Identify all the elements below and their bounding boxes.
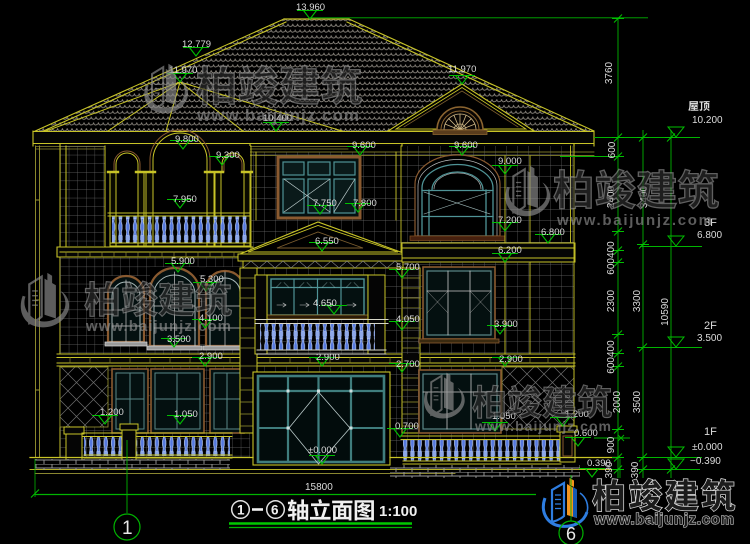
svg-text:www.baijunjz.com: www.baijunjz.com [85,318,231,335]
svg-text:2.900: 2.900 [499,354,523,365]
svg-text:600: 600 [607,141,618,158]
svg-text:www.baijunjz.com: www.baijunjz.com [593,511,734,528]
svg-text:9.800: 9.800 [175,134,199,145]
svg-text:9.600: 9.600 [352,140,376,151]
svg-text:0.700: 0.700 [395,421,419,432]
svg-text:7.750: 7.750 [313,198,337,209]
svg-text:2.900: 2.900 [199,351,223,362]
svg-text:900: 900 [606,436,617,453]
svg-text:6.200: 6.200 [498,245,522,256]
svg-text:3500: 3500 [632,390,643,413]
svg-text:9.000: 9.000 [498,156,522,167]
svg-text:600400: 600400 [606,340,617,374]
svg-text:2F: 2F [704,320,717,332]
svg-text:1F: 1F [704,426,717,438]
svg-text:6.800: 6.800 [697,230,722,241]
svg-text:7.950: 7.950 [173,194,197,205]
svg-text:5.700: 5.700 [396,262,420,273]
svg-text:4.050: 4.050 [396,314,420,325]
svg-text:15800: 15800 [305,482,333,493]
svg-text:www.baijunjz.com: www.baijunjz.com [474,418,611,434]
svg-text:7.200: 7.200 [498,215,522,226]
svg-text:1: 1 [237,503,245,518]
svg-text:1.200: 1.200 [100,407,124,418]
svg-text:3.900: 3.900 [494,319,518,330]
svg-text:12.779: 12.779 [182,39,211,50]
svg-text:13.960: 13.960 [296,2,325,13]
svg-text:−0.390: −0.390 [690,456,721,467]
svg-text:4.650: 4.650 [313,298,337,309]
svg-text:390: 390 [604,461,615,478]
svg-text:5.900: 5.900 [171,256,195,267]
svg-text:3.500: 3.500 [697,333,722,344]
svg-text:10590: 10590 [660,298,671,326]
svg-text:2000: 2000 [612,390,623,413]
svg-text:600400: 600400 [606,241,617,275]
svg-text:6.550: 6.550 [315,236,339,247]
svg-text:2.900: 2.900 [316,352,340,363]
svg-text:6: 6 [566,524,576,544]
svg-text:3300: 3300 [632,289,643,312]
svg-text:www.baijunjz.com: www.baijunjz.com [196,106,359,125]
svg-text:2.700: 2.700 [396,359,420,370]
svg-text:3760: 3760 [604,61,615,84]
svg-text:3.500: 3.500 [167,334,191,345]
svg-text:390: 390 [630,461,641,478]
svg-text:10.200: 10.200 [692,115,723,126]
svg-text:9.300: 9.300 [216,150,240,161]
svg-text:2300: 2300 [606,289,617,312]
svg-text:11.970: 11.970 [448,64,476,75]
svg-text:1.050: 1.050 [174,409,198,420]
svg-text:1:100: 1:100 [379,503,417,520]
svg-text:±0.000: ±0.000 [308,445,337,456]
svg-text:1: 1 [122,518,133,539]
svg-text:7.800: 7.800 [353,198,377,209]
svg-text:9.600: 9.600 [454,140,478,151]
svg-text:±0.000: ±0.000 [692,442,723,453]
svg-text:6: 6 [271,503,279,518]
